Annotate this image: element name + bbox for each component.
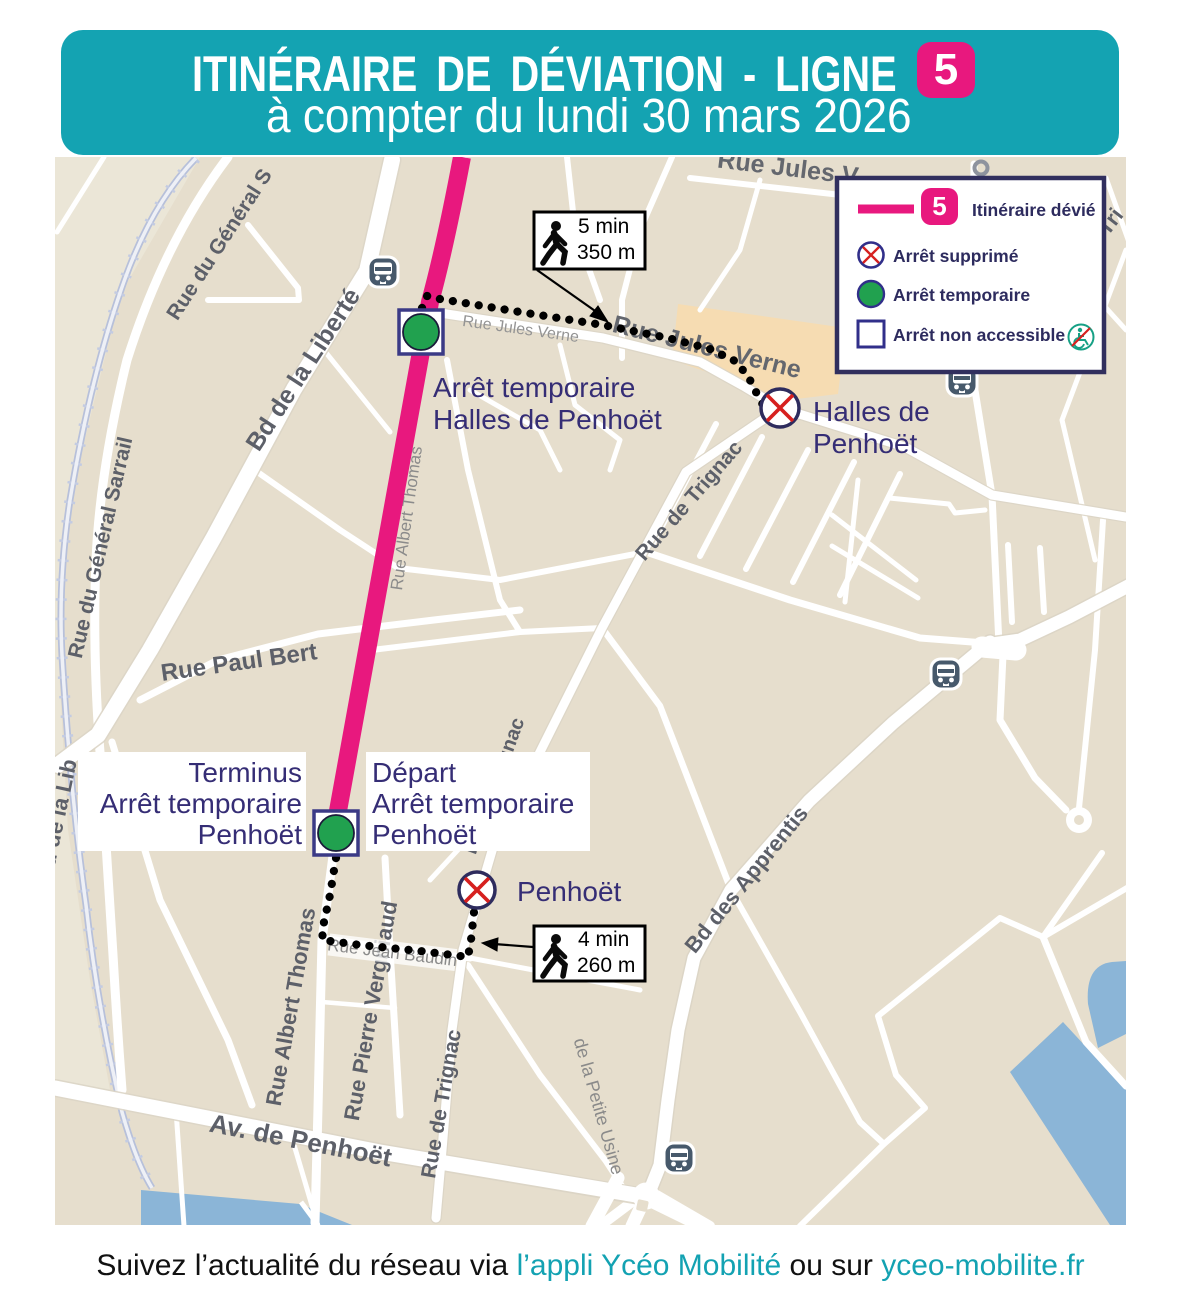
svg-text:Départ: Départ xyxy=(372,757,456,788)
svg-text:Penhoët: Penhoët xyxy=(517,876,622,907)
svg-text:4 min: 4 min xyxy=(578,928,629,951)
svg-text:Itinéraire dévié: Itinéraire dévié xyxy=(972,200,1096,220)
svg-text:Halles de: Halles de xyxy=(813,396,930,427)
svg-text:Arrêt temporaire: Arrêt temporaire xyxy=(893,285,1030,305)
svg-text:Halles de Penhoët: Halles de Penhoët xyxy=(433,404,662,435)
svg-text:Terminus: Terminus xyxy=(188,757,302,788)
svg-text:Penhoët: Penhoët xyxy=(813,428,918,459)
svg-text:Arrêt temporaire: Arrêt temporaire xyxy=(433,372,635,403)
svg-text:Arrêt supprimé: Arrêt supprimé xyxy=(893,246,1019,266)
svg-text:Arrêt temporaire: Arrêt temporaire xyxy=(372,788,574,819)
svg-text:Penhoët: Penhoët xyxy=(198,819,303,850)
svg-text:5: 5 xyxy=(932,191,946,221)
svg-text:5 min: 5 min xyxy=(578,215,629,238)
svg-text:Arrêt temporaire: Arrêt temporaire xyxy=(100,788,302,819)
svg-text:260 m: 260 m xyxy=(577,954,635,977)
svg-text:Penhoët: Penhoët xyxy=(372,819,477,850)
svg-text:Arrêt non accessible: Arrêt non accessible xyxy=(893,325,1065,345)
svg-text:350 m: 350 m xyxy=(577,241,635,264)
